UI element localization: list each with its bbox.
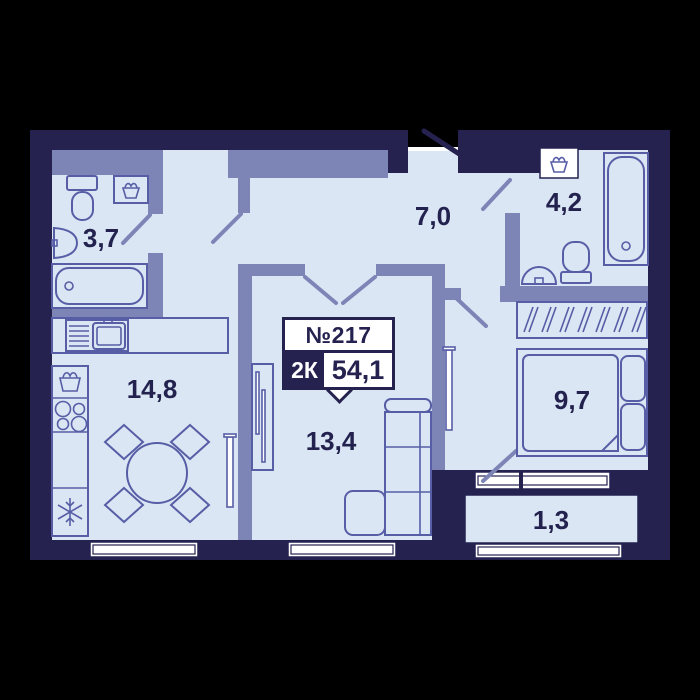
tv-icon	[446, 350, 452, 430]
room-area-label-bathroom-small: 3,7	[83, 223, 119, 253]
tv-bracket-icon	[443, 347, 455, 350]
floor-plan-stage: 3,7 7,0 4,2 14,8 13,4 9,7 1,3 №217 2К 54…	[0, 0, 700, 700]
kitchen-door-stub	[238, 175, 250, 213]
left-wall	[30, 130, 52, 560]
entrance-jamb-left	[388, 130, 408, 173]
entrance-jamb-right	[458, 130, 540, 173]
apartment-type-badge: 2К	[285, 353, 324, 387]
living-top-wall-left	[238, 264, 305, 276]
apartment-summary: 2К 54,1	[285, 353, 392, 387]
hallway-top-duct	[228, 150, 388, 178]
living-window	[288, 542, 396, 557]
apartment-callout: №217 2К 54,1	[282, 317, 395, 390]
room-area-label-hallway: 7,0	[415, 201, 451, 231]
room-area-label-kitchen: 14,8	[127, 374, 178, 404]
bathroom1-wall-lower	[148, 253, 163, 307]
wardrobe-handle-icon	[256, 372, 259, 434]
apartment-number: №217	[285, 320, 392, 353]
balcony-door-divider	[519, 472, 523, 489]
wardrobe-handle-icon	[262, 390, 265, 462]
balcony-glazing	[475, 544, 622, 558]
kitchen-living-wall	[238, 264, 252, 540]
kitchen-window	[90, 542, 198, 557]
bathroom2-bottom-wall	[500, 286, 648, 302]
tv-bracket-icon	[224, 434, 236, 437]
balcony-door-window	[475, 472, 610, 489]
living-top-wall-right	[376, 264, 445, 276]
living-bedroom-wall	[432, 276, 445, 470]
room-area-label-bathroom-large: 4,2	[546, 187, 582, 217]
room-area-label-living: 13,4	[306, 426, 357, 456]
room-area-label-balcony: 1,3	[533, 505, 569, 535]
bathroom2-left-wall	[505, 213, 520, 286]
top-wall-left	[30, 130, 408, 150]
bathroom1-top-duct	[52, 150, 163, 175]
room-area-label-bedroom: 9,7	[554, 385, 590, 415]
apartment-total-area: 54,1	[324, 353, 392, 387]
bathroom1-wall-upper	[148, 175, 163, 214]
table-top-icon	[127, 443, 187, 503]
tv-icon	[227, 437, 233, 507]
laundry-box	[540, 148, 578, 178]
